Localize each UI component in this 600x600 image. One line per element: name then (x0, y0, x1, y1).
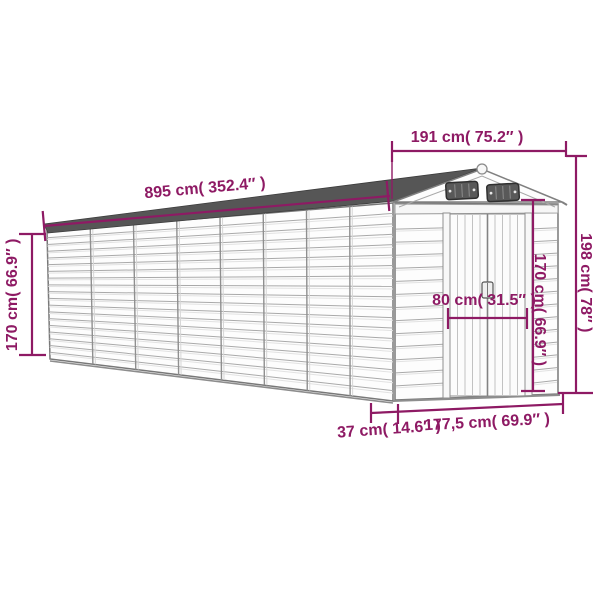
dimension-label-top-width: 191 cm( 75.2″ ) (392, 129, 542, 147)
roof-apex-finial (477, 164, 487, 174)
gable-vent-left (446, 181, 479, 200)
diagram-canvas: 191 cm( 75.2″ ) 895 cm( 352.4″ ) 170 cm(… (0, 0, 600, 600)
dimension-label-rear-height: 170 cm( 66.9″ ) (4, 215, 22, 375)
side-wall (47, 203, 393, 403)
dimension-line-rear-height (19, 234, 46, 355)
dimension-label-front-height: 198 cm( 78″ ) (576, 203, 594, 363)
dimension-label-door-width: 80 cm( 31.5″ ) (429, 292, 539, 310)
gable-vent-right (487, 183, 520, 202)
dimension-label-door-height: 170 cm( 66.9″ ) (530, 230, 548, 390)
